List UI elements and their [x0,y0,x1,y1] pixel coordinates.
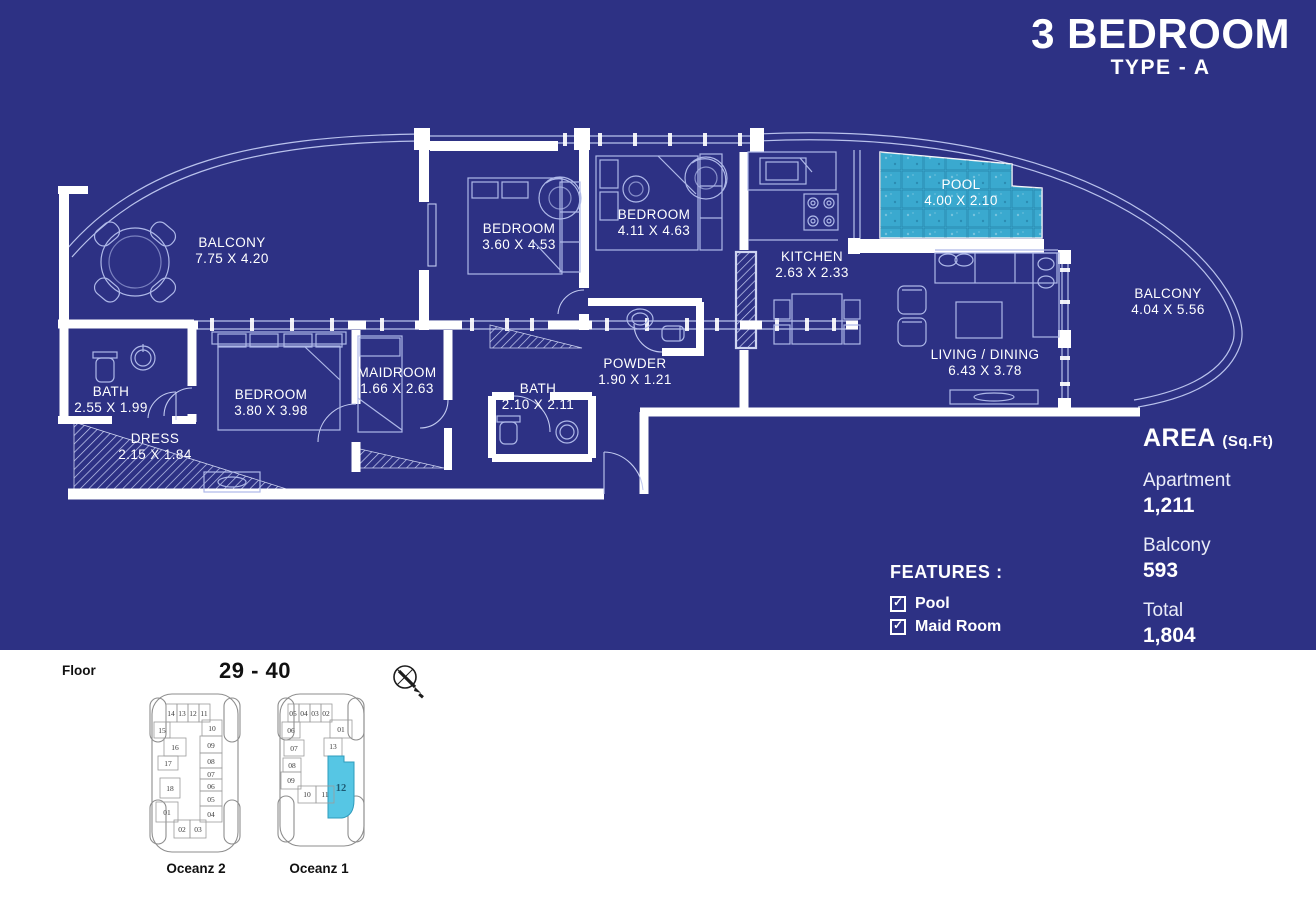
floor-key-strip: Floor 29 - 40 [0,650,1316,900]
room-dims-powder: 1.90 X 1.21 [598,372,671,387]
unit-number: 11 [200,709,207,718]
unit-number: 05 [289,709,297,718]
building-name-oceanz-1: Oceanz 1 [276,861,362,876]
unit-number: 06 [207,782,215,791]
unit-number: 02 [178,825,186,834]
feature-item-maid-room: Maid Room [890,618,1003,636]
feature-item-pool: Pool [890,595,1003,613]
unit-number: 08 [207,757,215,766]
room-dims-pool: 4.00 X 2.10 [924,193,997,208]
building-oceanz-1: 05 04 03 02 01 06 07 08 09 13 10 11 12 [278,694,364,846]
highlighted-unit-number: 12 [336,783,347,794]
area-value: 593 [1143,559,1273,583]
unit-number: 11 [321,790,328,799]
unit-number: 10 [208,724,216,733]
room-dims-bath-mid: 2.10 X 2.11 [502,397,574,412]
unit-number: 05 [207,795,215,804]
area-heading-text: AREA [1143,424,1215,452]
room-label-powder: POWDER [603,356,666,371]
floorplan-drawing: BALCONY 7.75 X 4.20 BEDROOM 3.60 X 4.53 … [0,0,1316,650]
checked-checkbox-icon [890,619,906,635]
unit-number: 13 [329,742,337,751]
feature-label: Pool [915,595,950,613]
unit-number: 06 [287,726,295,735]
unit-number: 01 [337,725,345,734]
room-label-balcony-right: BALCONY [1134,286,1201,301]
area-value: 1,804 [1143,624,1273,648]
page-subtitle: TYPE - A [1031,56,1290,80]
unit-number: 16 [171,743,179,752]
unit-number: 08 [288,761,296,770]
unit-number: 09 [207,741,215,750]
unit-number: 18 [166,784,174,793]
unit-number: 14 [167,709,175,718]
area-panel: AREA (Sq.Ft) Apartment 1,211 Balcony 593… [1143,424,1273,648]
unit-number: 02 [322,709,330,718]
area-value: 1,211 [1143,494,1273,518]
room-dims-bedroom-left: 3.80 X 3.98 [234,403,307,418]
brochure-page: BALCONY 7.75 X 4.20 BEDROOM 3.60 X 4.53 … [0,0,1316,900]
unit-number: 10 [303,790,311,799]
room-label-bath-mid: BATH [520,381,557,396]
room-label-bedroom-mid: BEDROOM [483,221,556,236]
unit-number: 04 [300,709,308,718]
unit-number: 13 [178,709,186,718]
room-dims-dress: 2.15 X 1.84 [118,447,192,462]
unit-number: 07 [290,744,298,753]
area-heading: AREA (Sq.Ft) [1143,424,1273,453]
features-panel: FEATURES : Pool Maid Room [890,562,1003,636]
area-label: Apartment [1143,470,1273,492]
floor-range: 29 - 40 [185,658,325,684]
floor-label: Floor [62,663,96,678]
room-label-pool: POOL [941,177,980,192]
room-label-balcony-left: BALCONY [198,235,265,250]
area-unit-suffix: (Sq.Ft) [1222,433,1273,450]
room-dims-balcony-right: 4.04 X 5.56 [1131,302,1204,317]
room-label-dress: DRESS [131,431,180,446]
unit-number: 01 [163,808,171,817]
room-dims-maidroom: 1.66 X 2.63 [360,381,433,396]
room-dims-bedroom-mid: 3.60 X 4.53 [482,237,555,252]
building-oceanz-2: 14 13 12 11 15 16 17 18 01 02 03 10 09 0… [150,694,240,852]
room-dims-kitchen: 2.63 X 2.33 [775,265,848,280]
page-title: 3 BEDROOM [1031,12,1290,56]
unit-number: 04 [207,810,215,819]
compass-icon [394,666,424,698]
area-label: Balcony [1143,535,1273,557]
room-label-living-dining: LIVING / DINING [931,347,1040,362]
room-label-bedroom-right: BEDROOM [618,207,691,222]
unit-number: 12 [189,709,197,718]
room-label-bedroom-left: BEDROOM [235,387,308,402]
features-heading: FEATURES : [890,562,1003,583]
room-label-bath-left: BATH [93,384,130,399]
room-dims-living-dining: 6.43 X 3.78 [948,363,1021,378]
unit-number: 07 [207,770,215,779]
room-dims-bath-left: 2.55 X 1.99 [74,400,147,415]
room-dims-balcony-left: 7.75 X 4.20 [195,251,268,266]
area-row-total: Total 1,804 [1143,600,1273,648]
unit-number: 17 [164,759,172,768]
checked-checkbox-icon [890,596,906,612]
room-dims-bedroom-right: 4.11 X 4.63 [618,223,690,238]
room-label-maidroom: MAIDROOM [358,365,437,380]
feature-label: Maid Room [915,618,1001,636]
area-label: Total [1143,600,1273,622]
title-block: 3 BEDROOM TYPE - A [1031,12,1290,80]
area-row-apartment: Apartment 1,211 [1143,470,1273,518]
unit-number: 03 [311,709,319,718]
unit-number: 15 [158,726,166,735]
unit-number: 03 [194,825,202,834]
room-label-kitchen: KITCHEN [781,249,843,264]
area-row-balcony: Balcony 593 [1143,535,1273,583]
floorplan-panel: BALCONY 7.75 X 4.20 BEDROOM 3.60 X 4.53 … [0,0,1316,650]
building-name-oceanz-2: Oceanz 2 [153,861,239,876]
unit-number: 09 [287,776,295,785]
